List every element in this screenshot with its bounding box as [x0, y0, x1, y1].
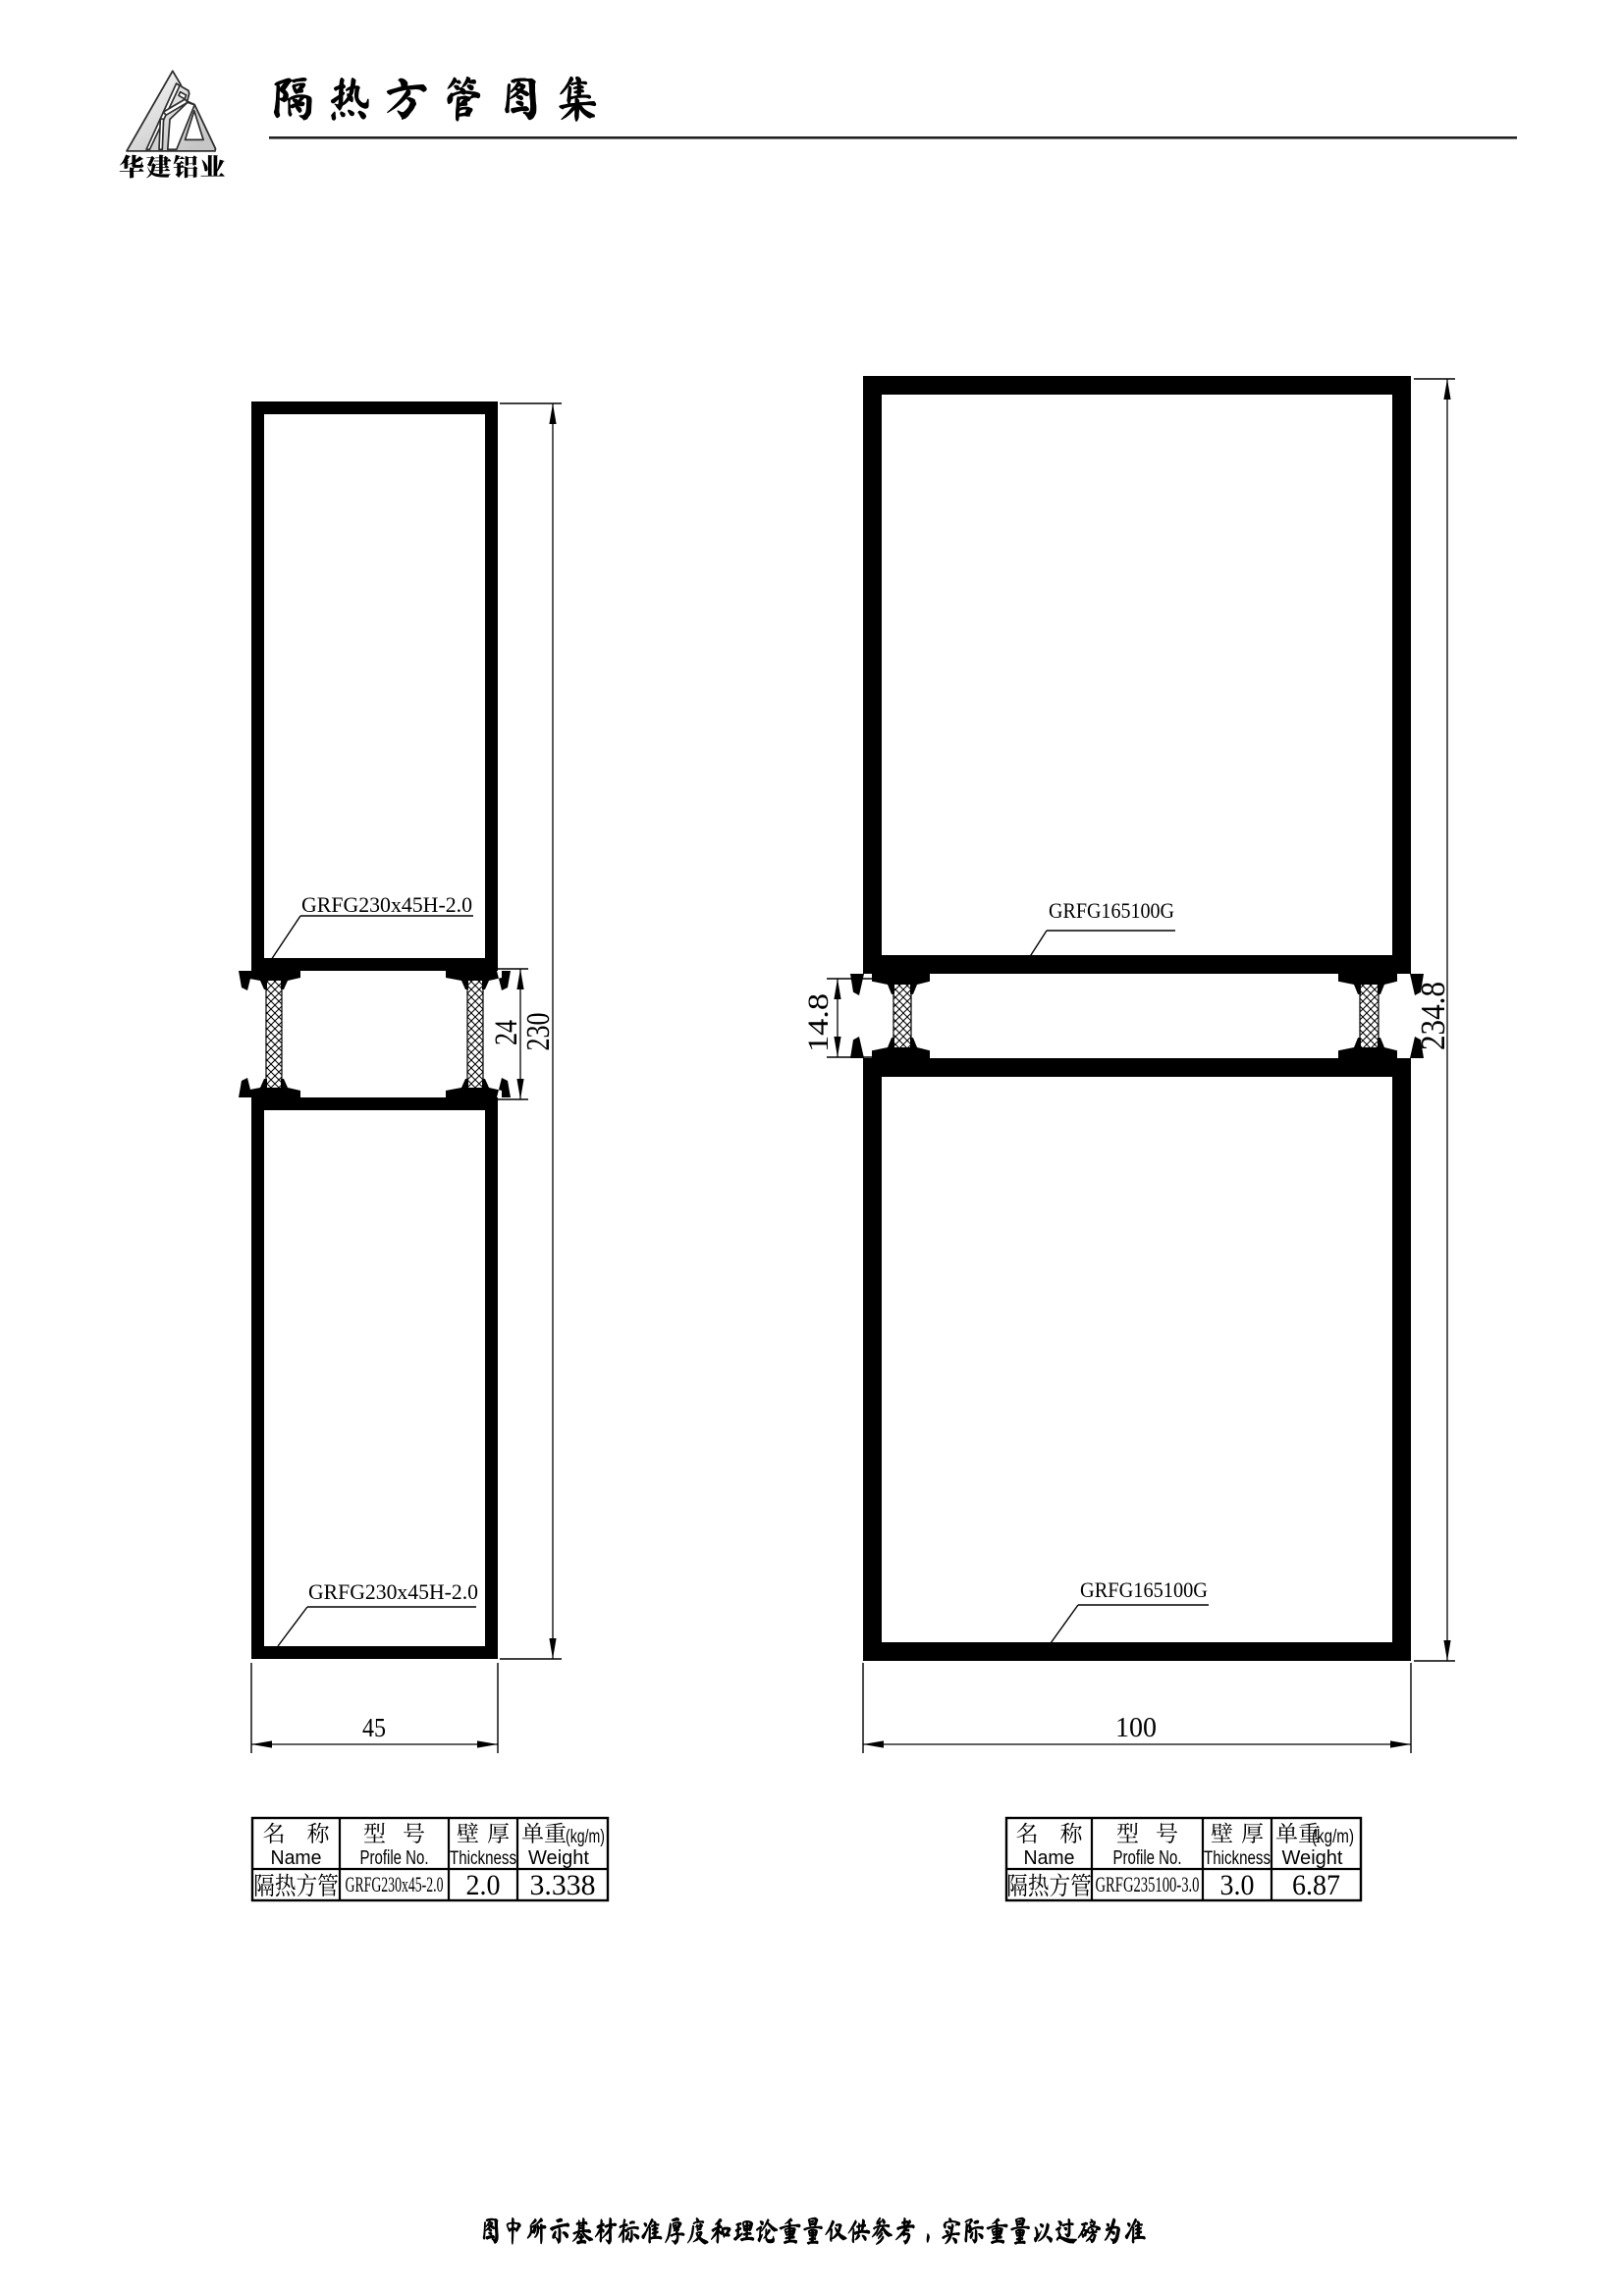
svg-text:Weight: Weight	[528, 1847, 589, 1869]
svg-text:Profile No.: Profile No.	[360, 1847, 429, 1869]
svg-text:GRFG235100-3.0: GRFG235100-3.0	[1096, 1872, 1200, 1896]
svg-text:234.8: 234.8	[1415, 982, 1452, 1050]
svg-text:230: 230	[520, 1013, 557, 1051]
svg-text:Weight: Weight	[1282, 1847, 1343, 1869]
svg-text:GRFG165100G: GRFG165100G	[1080, 1577, 1208, 1602]
svg-text:6.87: 6.87	[1292, 1869, 1340, 1901]
svg-text:GRFG230x45H-2.0: GRFG230x45H-2.0	[301, 892, 472, 917]
svg-text:100: 100	[1115, 1713, 1157, 1743]
svg-text:3.338: 3.338	[530, 1869, 596, 1901]
svg-text:14.8: 14.8	[802, 993, 835, 1052]
svg-text:2.0: 2.0	[466, 1869, 501, 1901]
svg-text:3.0: 3.0	[1220, 1869, 1255, 1901]
svg-text:GRFG230x45-2.0: GRFG230x45-2.0	[346, 1872, 444, 1896]
svg-text:Name: Name	[1024, 1847, 1075, 1869]
svg-text:(kg/m): (kg/m)	[1312, 1827, 1354, 1847]
svg-text:(kg/m): (kg/m)	[566, 1827, 605, 1847]
svg-text:Profile No.: Profile No.	[1113, 1847, 1182, 1869]
svg-text:Name: Name	[271, 1847, 322, 1869]
svg-text:24: 24	[489, 1020, 524, 1045]
svg-text:GRFG165100G: GRFG165100G	[1049, 898, 1174, 923]
svg-text:GRFG230x45H-2.0: GRFG230x45H-2.0	[308, 1579, 478, 1604]
svg-text:45: 45	[362, 1712, 386, 1742]
svg-text:Thickness: Thickness	[450, 1848, 516, 1869]
svg-text:Thickness: Thickness	[1204, 1848, 1271, 1869]
